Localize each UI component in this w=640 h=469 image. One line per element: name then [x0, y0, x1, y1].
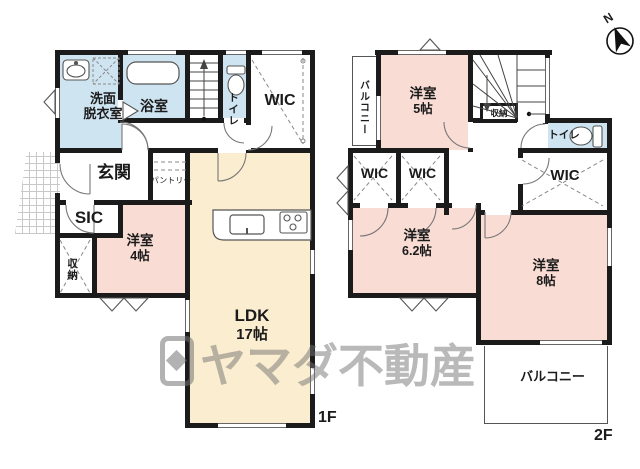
room-name: 洋室	[392, 86, 454, 102]
window	[607, 228, 612, 266]
wall	[476, 203, 481, 345]
room-label-bath: 浴室	[124, 98, 184, 114]
door-opening	[360, 203, 388, 208]
door-opening	[122, 148, 148, 153]
entrance-porch-tiles	[15, 152, 60, 234]
door-opening	[66, 200, 94, 205]
window	[545, 58, 550, 114]
room-label-toilet-1f: トイレ	[227, 86, 239, 132]
door-opening	[246, 126, 251, 150]
wall	[92, 237, 97, 297]
window	[310, 250, 315, 274]
room-label-wic-c: WIC	[535, 167, 595, 184]
window	[128, 50, 176, 55]
door-opening	[408, 203, 436, 208]
floor-label-2f: 2F	[594, 427, 626, 445]
room-size: 17帖	[212, 326, 292, 343]
room-size: 8帖	[514, 274, 578, 288]
wall	[55, 293, 190, 298]
floor-label-1f: 1F	[318, 409, 348, 427]
room-label-bedroom4: 洋室 4帖	[104, 233, 176, 263]
room-size: 4帖	[104, 249, 176, 263]
room-label-ldk: LDK 17帖	[212, 306, 292, 343]
wall	[246, 50, 251, 125]
compass-icon	[607, 24, 633, 54]
wall	[543, 118, 612, 123]
room-label-bedroom6: 洋室 6.2帖	[382, 228, 452, 258]
room-name: 洋室	[104, 233, 176, 249]
wall	[55, 148, 315, 153]
room-label-balcony-west: バルコニー	[357, 67, 369, 147]
door-opening	[517, 118, 545, 123]
door-opening	[518, 158, 523, 184]
floorplan-canvas: 収納	[0, 0, 640, 469]
compass-n-label: N	[601, 10, 616, 26]
door-opening	[468, 122, 473, 148]
room-size: 5帖	[392, 102, 454, 116]
room-label-bedroom5: 洋室 5帖	[392, 86, 454, 116]
window	[218, 423, 286, 428]
room-label-wic-b: WIC	[400, 165, 445, 181]
room-size: 6.2帖	[382, 244, 452, 258]
wall	[218, 50, 223, 122]
room-label-sic: SIC	[62, 208, 116, 228]
stairs-1f-icon	[190, 59, 218, 121]
wall	[185, 148, 190, 428]
room-name: LDK	[212, 306, 292, 326]
room-label-entrance: 玄関	[82, 163, 146, 183]
window	[262, 50, 302, 55]
closet-box-2f: 収納	[480, 103, 518, 122]
room-bedroom4-upper	[122, 201, 188, 237]
room-ldk	[190, 151, 312, 425]
wall	[185, 50, 190, 123]
closet-label-2f: 収納	[490, 107, 507, 119]
room-label-balcony-south: バルコニー	[505, 370, 600, 385]
room-label-storage-1f: 収納	[66, 247, 78, 291]
window	[310, 368, 315, 394]
room-label-bedroom8: 洋室 8帖	[514, 258, 578, 288]
door-opening	[452, 203, 476, 208]
room-label-pantry: パントリー	[150, 176, 192, 185]
wall	[348, 293, 481, 298]
room-name: 洋室	[382, 228, 452, 244]
window	[55, 88, 60, 118]
window	[348, 220, 353, 250]
room-label-toilet-2f: トイレ	[548, 129, 580, 141]
window	[185, 300, 190, 332]
wall	[518, 148, 612, 153]
balcony-south	[484, 346, 608, 424]
door-opening	[485, 210, 511, 215]
wall	[55, 193, 60, 297]
room-label-wic-a: WIC	[352, 165, 397, 181]
room-name: 洋室	[514, 258, 578, 274]
window	[376, 96, 381, 140]
window	[540, 340, 602, 345]
room-label-wic-1f: WIC	[252, 92, 308, 110]
window	[226, 50, 246, 55]
window	[398, 50, 446, 55]
door-opening	[218, 148, 246, 153]
